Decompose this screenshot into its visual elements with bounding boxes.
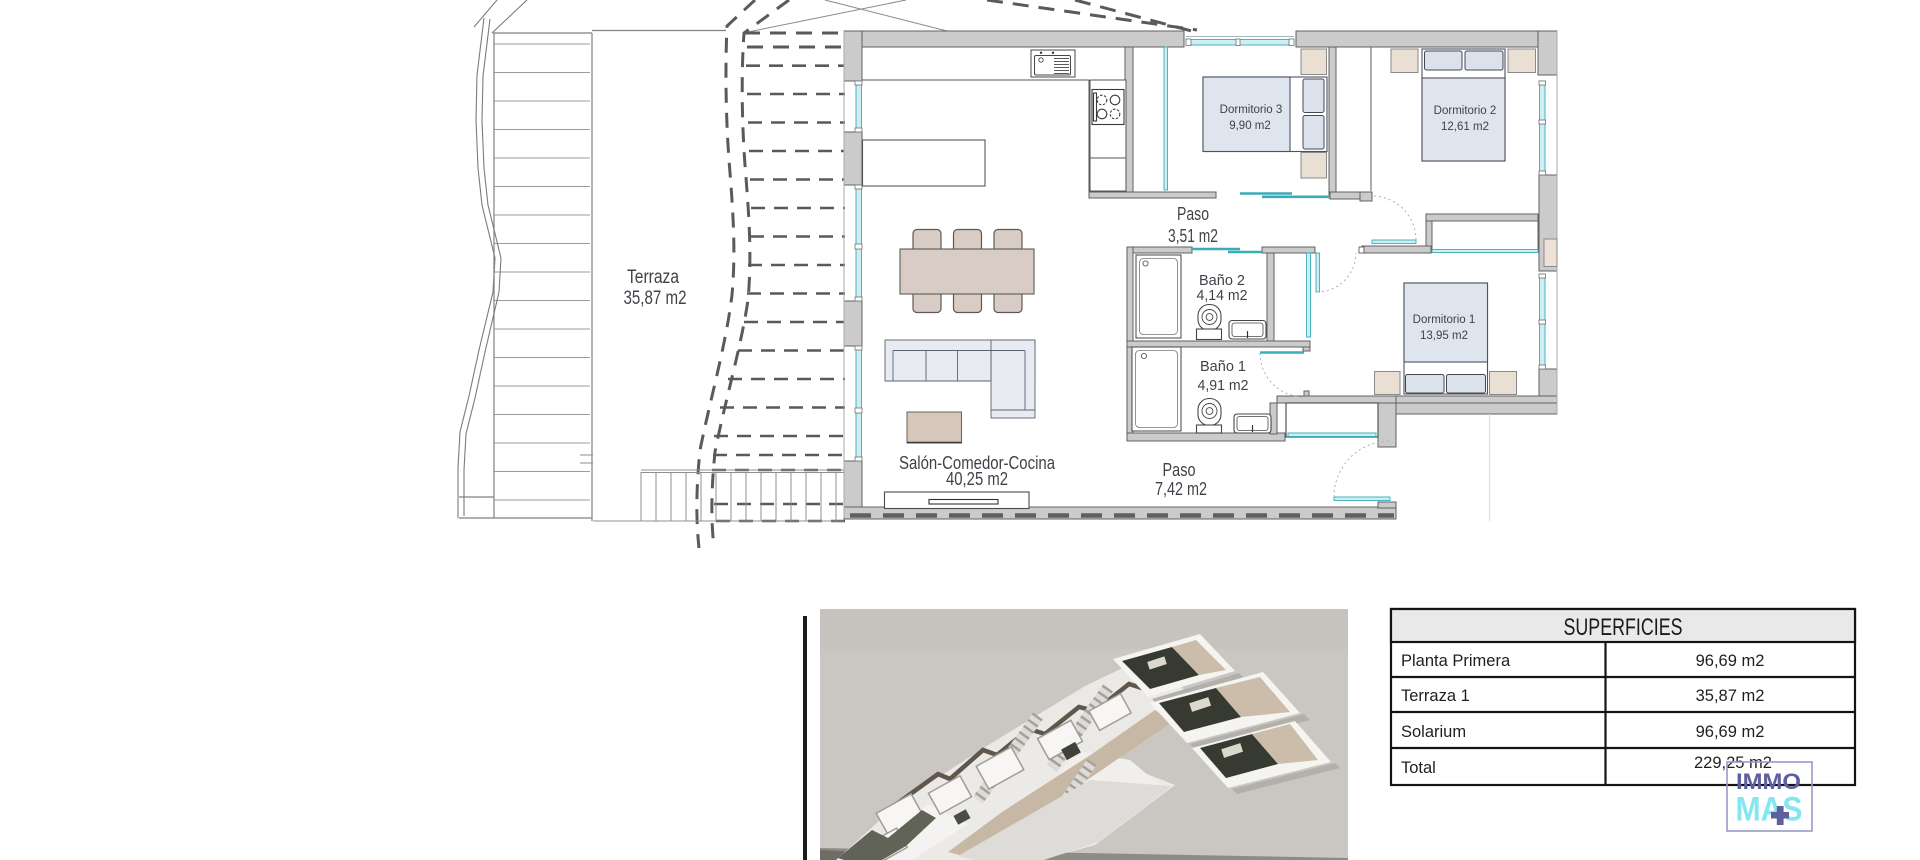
svg-text:SUPERFICIES: SUPERFICIES bbox=[1564, 614, 1683, 641]
svg-text:35,87 m2: 35,87 m2 bbox=[624, 288, 687, 309]
svg-text:Dormitorio 2: Dormitorio 2 bbox=[1434, 105, 1497, 117]
svg-text:9,90 m2: 9,90 m2 bbox=[1229, 120, 1271, 132]
svg-text:Total: Total bbox=[1401, 759, 1436, 777]
svg-text:Paso: Paso bbox=[1163, 459, 1196, 480]
svg-text:Paso: Paso bbox=[1177, 203, 1209, 224]
svg-text:12,61 m2: 12,61 m2 bbox=[1441, 121, 1489, 133]
svg-text:Terraza: Terraza bbox=[627, 267, 679, 288]
svg-text:4,91 m2: 4,91 m2 bbox=[1198, 377, 1249, 394]
svg-text:Terraza 1: Terraza 1 bbox=[1401, 687, 1470, 705]
svg-text:Baño 1: Baño 1 bbox=[1200, 358, 1246, 375]
svg-text:3,51 m2: 3,51 m2 bbox=[1168, 225, 1218, 246]
svg-text:4,14 m2: 4,14 m2 bbox=[1197, 287, 1248, 304]
svg-text:35,87 m2: 35,87 m2 bbox=[1696, 687, 1765, 705]
svg-text:96,69 m2: 96,69 m2 bbox=[1696, 723, 1765, 741]
svg-text:MAS: MAS bbox=[1736, 791, 1803, 829]
svg-text:Planta Primera: Planta Primera bbox=[1401, 652, 1511, 670]
svg-text:Dormitorio 1: Dormitorio 1 bbox=[1413, 314, 1476, 326]
svg-text:96,69 m2: 96,69 m2 bbox=[1696, 652, 1765, 670]
svg-text:Solarium: Solarium bbox=[1401, 723, 1466, 741]
svg-text:13,95 m2: 13,95 m2 bbox=[1420, 330, 1468, 342]
svg-text:40,25 m2: 40,25 m2 bbox=[946, 468, 1008, 489]
svg-text:7,42 m2: 7,42 m2 bbox=[1155, 478, 1207, 499]
svg-text:Dormitorio 3: Dormitorio 3 bbox=[1220, 104, 1283, 116]
